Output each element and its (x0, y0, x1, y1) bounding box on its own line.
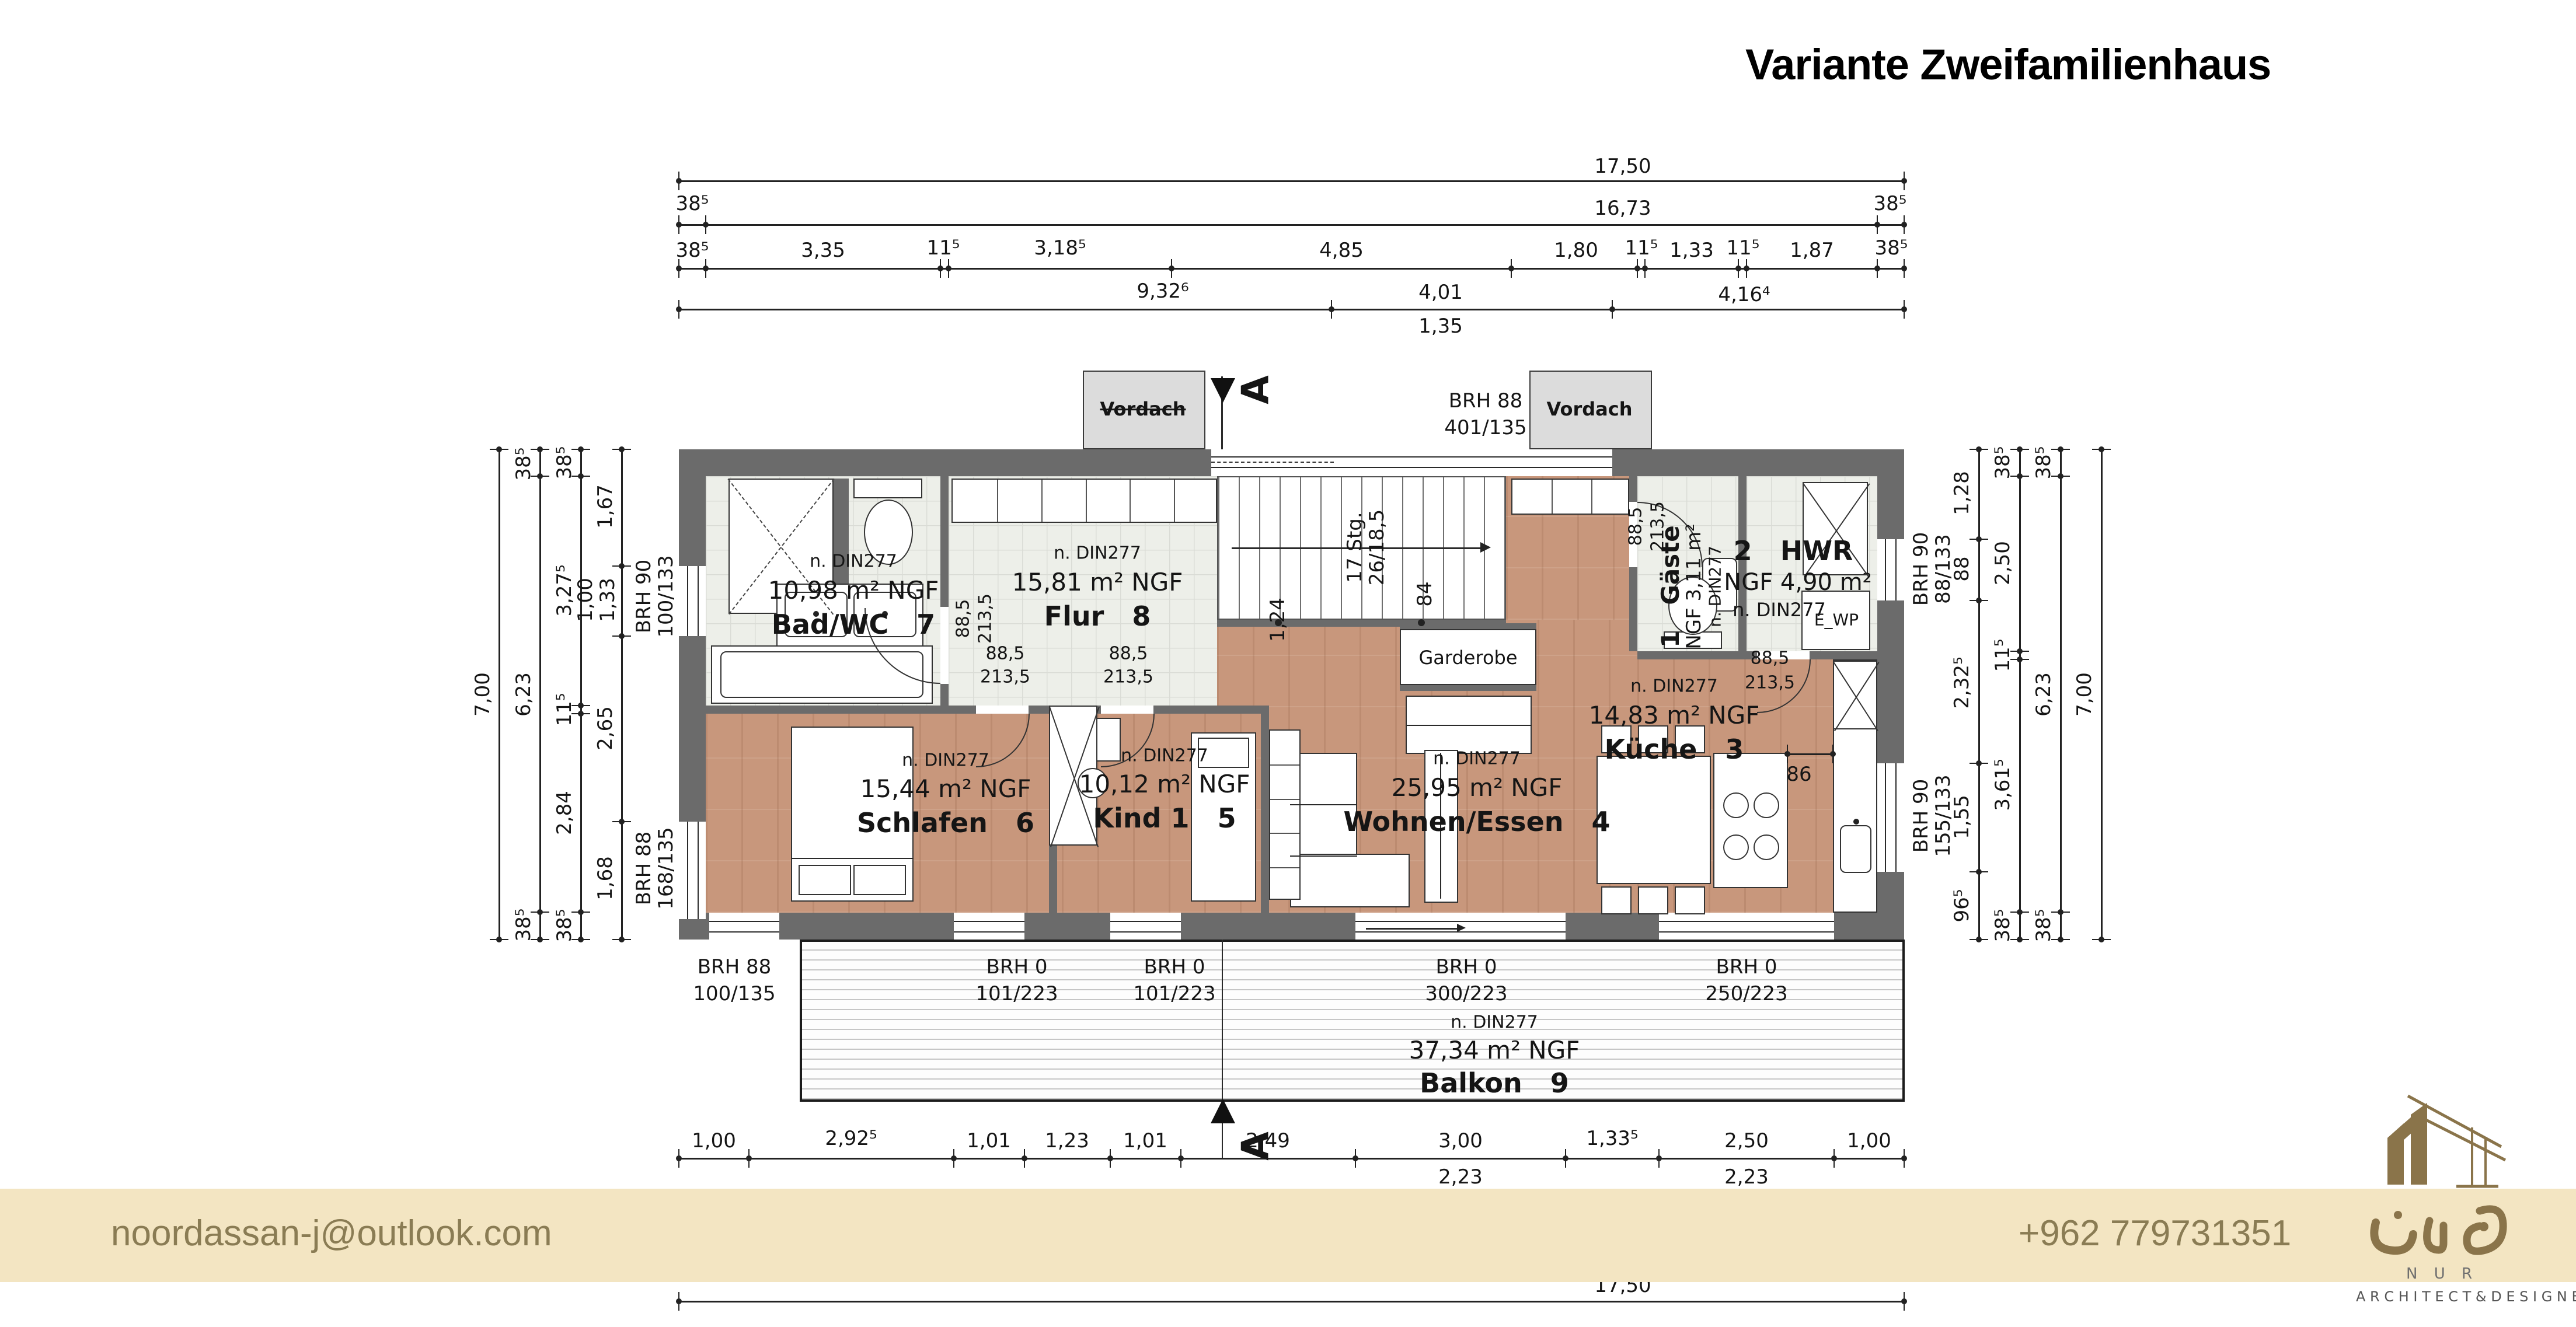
plan-label: 3,18⁵ (1034, 238, 1086, 259)
nur-logo: N U R A R C H I T E C T & D E S I G N E … (2352, 1091, 2539, 1313)
dim-tick-dash (1904, 259, 1905, 278)
plan-label: 155/133 (1933, 774, 1954, 857)
wall-bedrooms-top (679, 706, 1261, 714)
dim-tick-dash (1970, 539, 1988, 540)
plan-label: 213,5 (1648, 501, 1667, 551)
dim-tick-dash (1738, 259, 1739, 278)
plan-label: 1,00 (576, 578, 597, 622)
footer-phone: +962 779731351 (2019, 1213, 2291, 1254)
plan-label: 168/135 (656, 827, 677, 909)
plan-label: 213,5 (976, 593, 995, 644)
plan-label: 1,87 (1790, 240, 1834, 261)
plan-label: n. DIN277 (1054, 544, 1141, 563)
plan-label: Kind 1 5 (1093, 804, 1236, 832)
plan-label: n. DIN277 (1121, 746, 1208, 765)
wardrobe-flur-divider (1086, 480, 1087, 522)
plan-label: BRH 90 (1911, 532, 1932, 606)
plan-label: 1,55 (1952, 795, 1973, 839)
plan-label: n. DIN277 (1451, 1013, 1538, 1032)
dim-line (1787, 753, 1833, 755)
dim-line (679, 309, 1904, 310)
wardrobe-hall-divider (1552, 480, 1553, 514)
plan-label: 88,5 (986, 644, 1025, 663)
plan-label: 2,65 (595, 706, 616, 750)
plan-label: 17 Stg. (1345, 512, 1366, 582)
plan-label: Schlafen 6 (857, 809, 1034, 837)
dim-line (679, 268, 1904, 270)
plan-line (1659, 921, 1834, 922)
window-left-2 (679, 822, 706, 919)
dim-tick-dash (1877, 215, 1878, 234)
plan-label: 1,28 (1952, 471, 1973, 515)
plan-label: 4,85 (1319, 240, 1364, 261)
dim-line (679, 224, 1904, 226)
plan-label: 7,00 (473, 672, 494, 717)
plan-label: 88,5 (1109, 644, 1148, 663)
plan-label: 3,27⁵ (555, 564, 576, 616)
dim-tick-dash (1658, 1149, 1660, 1168)
plan-label: 1,33 (1669, 240, 1714, 261)
plan-label: E_WP (1814, 611, 1859, 628)
dim-tick-dash (705, 215, 706, 234)
dim-line (679, 1158, 1904, 1160)
dim-line (580, 449, 582, 940)
plan-label: 38⁵ (2034, 909, 2055, 942)
plan-label: 88,5 (954, 599, 972, 638)
plan-line (1211, 462, 1334, 463)
plan-label: 1,68 (595, 856, 616, 900)
plan-label: 3,35 (801, 240, 845, 261)
dim-tick-dash (1180, 1149, 1181, 1168)
plan-label: 2 HWR (1734, 537, 1853, 565)
plan-label: 38⁵ (514, 448, 535, 481)
plan-label: 1,01 (967, 1131, 1011, 1152)
plan-label: 38⁵ (555, 446, 576, 480)
plan-line (687, 566, 688, 636)
door-balcony-schlafen (954, 913, 1024, 940)
plan-label: 26/18,5 (1367, 509, 1388, 585)
slider-arrowhead (1457, 924, 1466, 932)
plan-label: NGF 4,90 m² (1724, 570, 1871, 595)
dim-tick-dash (1904, 300, 1905, 319)
plan-label: 37,34 m² NGF (1409, 1038, 1580, 1063)
window-right-2 (1877, 763, 1904, 872)
plan-label: 38⁵ (676, 240, 709, 261)
plan-line (1110, 921, 1181, 922)
chair (1675, 886, 1705, 914)
plan-label: 2,23 (1724, 1167, 1769, 1188)
stairs-arrowhead (1480, 542, 1491, 553)
plan-label: 38⁵ (2034, 446, 2055, 480)
plan-label: 88,5 (1751, 649, 1790, 668)
dim-tick-dash (1024, 1149, 1025, 1168)
plan-line (1406, 725, 1532, 726)
plan-line (1885, 539, 1886, 600)
plan-label: Wohnen/Essen 4 (1343, 808, 1610, 836)
plan-label: 1,00 (692, 1131, 736, 1152)
plan-layer: 17,5038⁵16,7338⁵38⁵3,3511⁵3,18⁵4,851,801… (0, 0, 2576, 1327)
plan-label: 11⁵ (1625, 238, 1658, 259)
plan-label: 1,24 (1268, 598, 1289, 642)
plan-label: 38⁵ (1993, 446, 2014, 480)
logo-arabic-calligraphy (2374, 1209, 2503, 1251)
plan-line (1885, 763, 1886, 872)
plan-label: 9,32⁶ (1137, 281, 1188, 302)
plan-label: A (1236, 1132, 1275, 1161)
plan-label: BRH 0 (1716, 957, 1777, 978)
dim-tick-dash (1833, 1149, 1835, 1168)
plan-label: 15,44 m² NGF (860, 776, 1031, 802)
plan-label: 2,50 (1724, 1131, 1769, 1152)
wardrobe-flur-divider (997, 480, 998, 522)
plan-label: 213,5 (980, 668, 1030, 686)
plan-label: 213,5 (1745, 673, 1795, 692)
sofa-chaise (1290, 854, 1410, 907)
plan-line (709, 931, 779, 933)
plan-label: n. DIN277 (1706, 546, 1723, 627)
plan-label: 4,16⁴ (1718, 285, 1770, 306)
plan-circle (1754, 792, 1779, 818)
floorplan-canvas: Variante Zweifamilienhaus 17,5038⁵16,733… (0, 0, 2576, 1327)
plan-line (791, 858, 914, 859)
plan-label: n. DIN277 (1733, 600, 1826, 620)
plan-label: 6,23 (2034, 672, 2055, 717)
plan-label: Küche 3 (1605, 735, 1744, 763)
dim-tick-dash (953, 1149, 954, 1168)
plan-line (1895, 763, 1897, 872)
dim-tick-dash (1110, 1149, 1111, 1168)
wardrobe-flur-divider (1130, 480, 1131, 522)
dim-tick-dash (1511, 259, 1512, 278)
plan-line (1290, 855, 1357, 857)
plan-label: BRH 0 (1144, 957, 1205, 978)
plan-circle (1853, 819, 1859, 825)
plan-label: A (1236, 375, 1275, 404)
dim-tick-dash (1904, 1149, 1905, 1168)
plan-label: n. DIN277 (1630, 677, 1718, 696)
dim-tick-dash (1877, 259, 1878, 278)
wall-schlafen-kind (1049, 843, 1057, 913)
dim-tick-dash (678, 1149, 679, 1168)
plan-label: 2,32⁵ (1952, 656, 1973, 708)
shelf-kind-divider (1270, 764, 1299, 766)
plan-label: 213,5 (1103, 668, 1153, 686)
plan-label: BRH 0 (1436, 957, 1497, 978)
plan-line (1290, 804, 1357, 805)
plan-label: BRH 0 (987, 957, 1048, 978)
wc-tank (853, 479, 922, 498)
plan-label: 1,23 (1045, 1131, 1089, 1152)
dim-tick-dash (490, 449, 508, 450)
plan-line (1211, 456, 1612, 458)
plan-label: n. DIN277 (1433, 749, 1521, 768)
plan-label: Flur 8 (1044, 602, 1151, 630)
plan-label: 38⁵ (1875, 238, 1908, 259)
dim-tick-dash (748, 1149, 750, 1168)
dim-tick-dash (490, 939, 508, 940)
section-flag-top (1211, 378, 1235, 403)
doorgap-schlafen (976, 706, 1029, 714)
plan-label: Bad/WC 7 (772, 610, 935, 638)
dim-tick-dash (1970, 871, 1988, 872)
plan-label: 11⁵ (1993, 639, 2014, 672)
shelf-kind-divider (1270, 799, 1299, 800)
dim-tick-dash (678, 300, 679, 319)
plan-label: 86 (1786, 764, 1811, 785)
plan-label: 88/133 (1933, 534, 1954, 604)
dim-tick-dash (1970, 939, 1988, 940)
dim-tick-dash (612, 635, 631, 637)
dim-tick-dash (1612, 300, 1613, 319)
plan-label: 250/223 (1705, 984, 1787, 1005)
window-bottom-1 (709, 913, 779, 940)
wardrobe-flur-divider (1174, 480, 1175, 522)
shelf-kind (1269, 729, 1301, 900)
plan-label: n. DIN277 (810, 552, 897, 571)
dim-tick-dash (2092, 939, 2111, 940)
plan-label: Vordach (1100, 400, 1186, 420)
plan-circle (1418, 619, 1425, 626)
logo-roof-line-2 (2421, 1118, 2505, 1160)
window-right-1 (1877, 539, 1904, 600)
plan-label: 38⁵ (1993, 909, 2014, 942)
dim-tick-dash (1832, 745, 1833, 763)
tall-cabinet (1833, 661, 1877, 729)
wardrobe-flur (951, 479, 1217, 523)
plan-label: Garderobe (1418, 648, 1517, 668)
plan-label: 1,33 (598, 578, 619, 622)
dim-tick-dash (1644, 259, 1646, 278)
dim-line (2019, 449, 2021, 940)
plan-label: 17,50 (1594, 156, 1651, 177)
chair (1638, 886, 1668, 914)
dim-tick-dash (1970, 763, 1988, 764)
doorgap-bad (940, 607, 949, 684)
plan-line (954, 931, 1024, 933)
plan-label: 88,5 (1626, 507, 1645, 546)
dim-tick-dash (2092, 449, 2111, 450)
dim-tick-dash (1565, 1149, 1566, 1168)
dim-line (499, 449, 500, 940)
plan-circle (1723, 792, 1749, 818)
dim-tick-dash (612, 565, 631, 567)
dim-tick-dash (1904, 1292, 1905, 1311)
plan-label: 11⁵ (1727, 238, 1760, 259)
plan-label: 1,67 (595, 484, 616, 529)
plan-line (1222, 940, 1223, 1158)
plan-label: 300/223 (1425, 984, 1507, 1005)
plan-label: 3,61⁵ (1993, 759, 2014, 811)
plan-label: BRH 88 (698, 957, 772, 978)
plan-label: 401/135 (1444, 418, 1526, 439)
plan-label: 1,80 (1554, 240, 1598, 261)
plan-label: n. DIN277 (902, 751, 989, 770)
plan-line (709, 921, 779, 922)
dim-line (1978, 449, 1980, 940)
dim-tick-dash (678, 1292, 679, 1311)
dim-tick-dash (1331, 300, 1332, 319)
dim-tick-dash (1904, 172, 1905, 190)
dim-line (621, 449, 623, 940)
plan-label: Vordach (1546, 400, 1632, 420)
plan-line (954, 921, 1024, 922)
dim-tick-dash (612, 449, 631, 450)
kitchen-island (1713, 753, 1788, 888)
plan-label: 100/133 (656, 555, 677, 637)
window-entry-top (1211, 449, 1612, 476)
dining-table (1597, 756, 1711, 884)
plan-label: BRH 90 (634, 560, 655, 634)
plan-label: 1,33⁵ (1586, 1129, 1638, 1150)
logo-latin-name: N U R (2406, 1265, 2478, 1283)
plan-label: 2,50 (1993, 541, 2014, 585)
plan-circle (1723, 834, 1749, 860)
plan-label: 101/223 (1133, 984, 1215, 1005)
plan-label: BRH 88 (634, 832, 655, 906)
plan-label: 1,35 (1418, 316, 1463, 337)
plan-line (1355, 921, 1566, 922)
dim-tick-dash (1787, 745, 1788, 763)
section-flag-bottom (1211, 1099, 1235, 1123)
plan-label: 38⁵ (514, 909, 535, 942)
dim-tick-dash (678, 215, 679, 234)
dim-tick-dash (1637, 259, 1638, 278)
plan-label: 101/223 (975, 984, 1058, 1005)
plan-label: BRH 90 (1911, 779, 1932, 853)
chair (1601, 886, 1632, 914)
window-left-1 (679, 566, 706, 636)
dim-tick-dash (612, 821, 631, 822)
plan-label: Balkon 9 (1420, 1069, 1569, 1097)
shelf-kind-divider (1270, 833, 1299, 834)
plan-label: 11⁵ (927, 238, 960, 259)
dim-tick-dash (1970, 449, 1988, 450)
dim-tick-dash (1904, 215, 1905, 234)
plan-label: 84 (1415, 581, 1436, 606)
dim-tick-dash (940, 259, 941, 278)
kitchen-sink (1840, 825, 1871, 873)
dim-line (679, 1301, 1904, 1302)
plan-line (687, 822, 688, 919)
dim-line (2060, 449, 2062, 940)
plan-label: 14,83 m² NGF (1589, 703, 1760, 728)
dim-tick-dash (1746, 259, 1747, 278)
plan-label: 96⁵ (1952, 889, 1973, 923)
plan-line (698, 822, 699, 919)
plan-label: 10,12 m² NGF (1079, 771, 1250, 797)
shelf-kind-divider (1270, 867, 1299, 868)
wardrobe-hall (1511, 479, 1629, 515)
door-balcony-kind (1110, 913, 1181, 940)
plan-label: 38⁵ (1874, 194, 1907, 215)
plan-label: BRH 88 (1449, 391, 1523, 412)
plan-label: 4,01 (1418, 282, 1463, 303)
plan-label: 16,73 (1594, 198, 1651, 219)
door-balcony-kueche (1659, 913, 1834, 940)
dim-tick-dash (948, 259, 949, 278)
dim-line (2101, 449, 2103, 940)
plan-label: 15,81 m² NGF (1012, 570, 1183, 595)
dim-tick-dash (1970, 600, 1988, 601)
wall-kind-wohnen (1261, 706, 1269, 913)
plan-label: 6,23 (514, 672, 535, 717)
dim-line (679, 180, 1904, 182)
plan-label: 7,00 (2075, 672, 2096, 717)
plan-label: 11⁵ (555, 693, 576, 727)
plan-label: 38⁵ (555, 909, 576, 942)
plan-label: 2,84 (555, 791, 576, 835)
plan-label: 1,00 (1847, 1131, 1891, 1152)
plan-label: 10,98 m² NGF (768, 578, 939, 603)
plan-circle (1754, 834, 1779, 860)
garderobe-bottom-bar (1400, 685, 1536, 691)
dim-tick-dash (612, 939, 631, 940)
plan-line (1366, 928, 1457, 930)
plan-line (1211, 467, 1612, 468)
plan-label: NGF 3,11 m² (1684, 523, 1705, 649)
pillow-2 (853, 865, 906, 895)
dim-tick-dash (1355, 1149, 1356, 1168)
plan-line (1895, 539, 1897, 600)
dim-line (539, 449, 541, 940)
logo-tagline: A R C H I T E C T & D E S I G N E R (2356, 1288, 2576, 1305)
dim-tick-dash (1171, 259, 1172, 278)
plan-label: 1,01 (1123, 1131, 1167, 1152)
dim-tick-dash (678, 172, 679, 190)
plan-line (1110, 931, 1181, 933)
plan-label: 38⁵ (676, 194, 709, 215)
plan-label: 2,23 (1438, 1167, 1483, 1188)
plan-label: 3,00 (1438, 1131, 1483, 1152)
plan-line (698, 566, 699, 636)
doorgap-kind (1101, 706, 1153, 714)
plan-label: 100/135 (693, 984, 775, 1005)
wardrobe-flur-divider (1041, 480, 1043, 522)
pillow-1 (799, 865, 851, 895)
plan-label: 2,92⁵ (825, 1129, 877, 1150)
footer-email: noordassan-j@outlook.com (111, 1213, 552, 1254)
plan-label: 25,95 m² NGF (1392, 775, 1563, 801)
plan-line (1659, 931, 1834, 933)
wardrobe-hall-divider (1591, 480, 1592, 514)
plan-label: 88 (1952, 556, 1973, 581)
